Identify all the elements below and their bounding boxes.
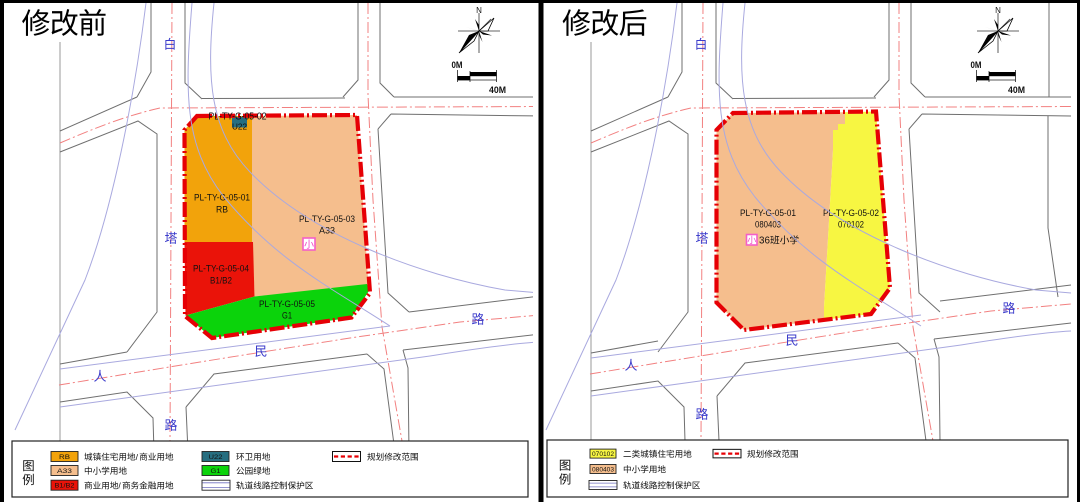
svg-text:PL-TY-G-05-04: PL-TY-G-05-04 <box>193 264 249 275</box>
svg-text:B1/B2: B1/B2 <box>55 483 75 490</box>
svg-text:070102: 070102 <box>592 451 614 458</box>
svg-text:PL-TY-G-05-03: PL-TY-G-05-03 <box>299 214 355 225</box>
svg-text:RB: RB <box>59 454 70 461</box>
svg-text:080403: 080403 <box>592 466 614 473</box>
svg-text:A33: A33 <box>57 468 72 475</box>
svg-text:G1: G1 <box>282 311 292 322</box>
svg-text:U22: U22 <box>232 123 248 132</box>
svg-text:A33: A33 <box>319 226 335 237</box>
svg-text:U22: U22 <box>209 454 223 461</box>
svg-text:G1: G1 <box>211 468 221 475</box>
svg-text:PL-TY-G-05-05: PL-TY-G-05-05 <box>259 299 315 310</box>
svg-text:RB: RB <box>216 205 228 216</box>
svg-text:B1/B2: B1/B2 <box>210 276 232 287</box>
svg-text:36: 36 <box>759 236 770 247</box>
svg-text:PL-TY-G-05-01: PL-TY-G-05-01 <box>740 208 796 219</box>
